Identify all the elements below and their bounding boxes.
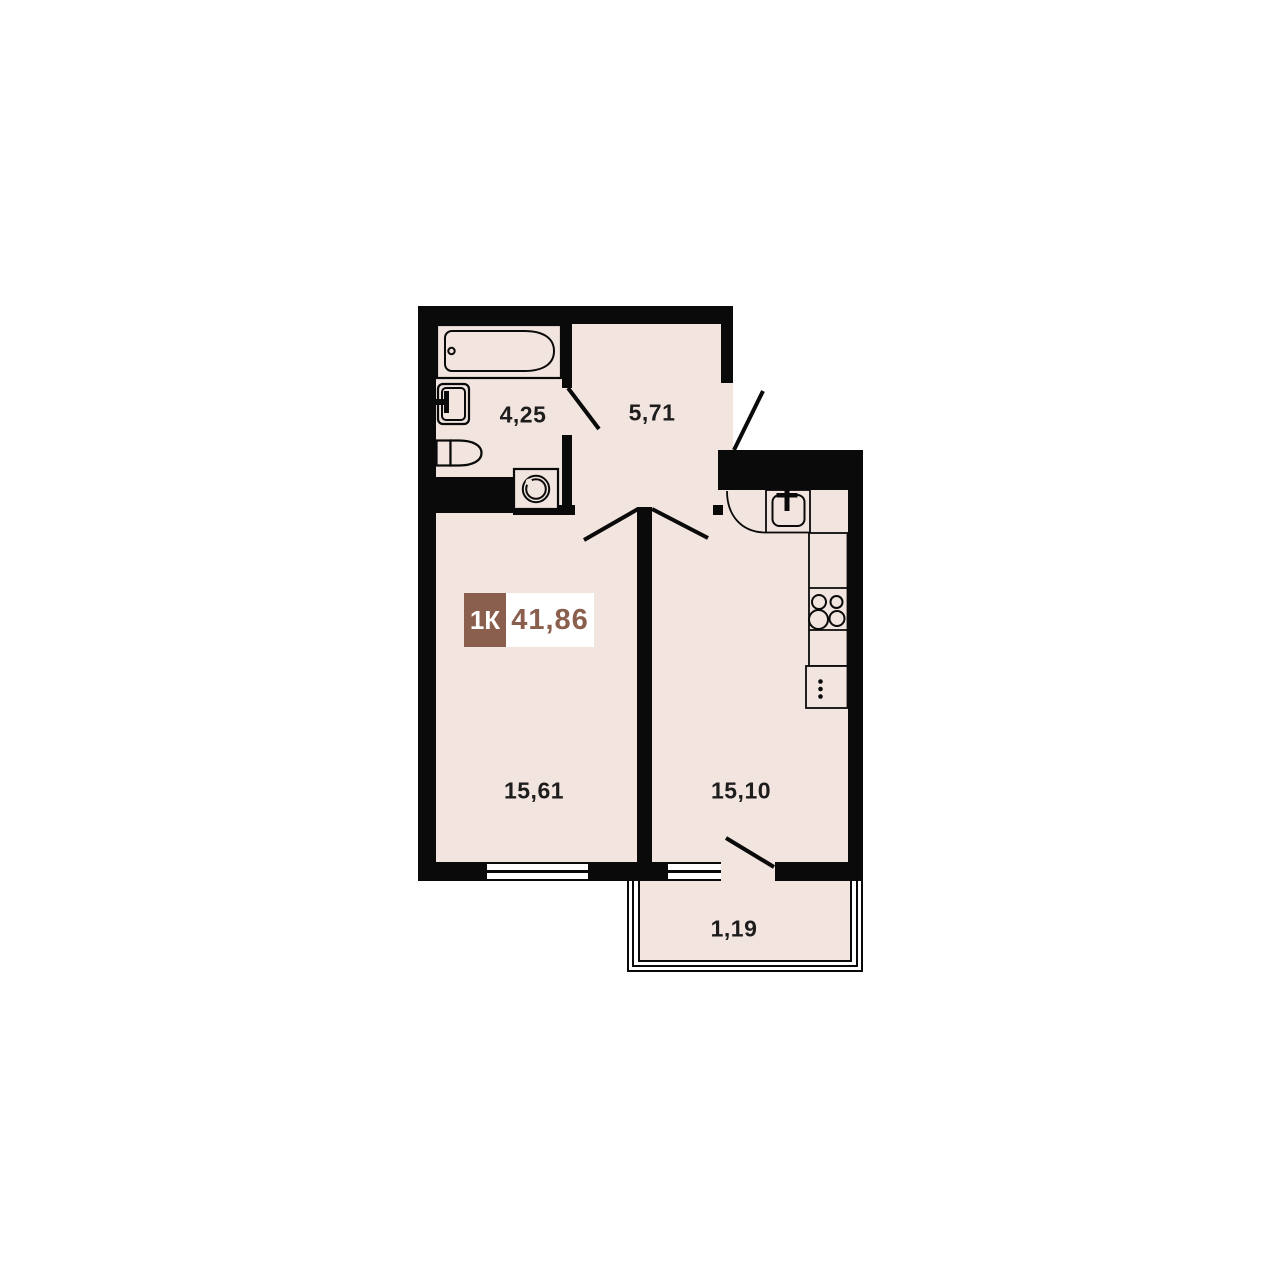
wall-bathroom-right-upper — [562, 324, 572, 388]
room-area-label-bathroom: 4,25 — [500, 402, 547, 429]
wall-under-washer — [513, 505, 575, 515]
window-living-room — [487, 862, 588, 881]
wall-partition-living-kitchen — [637, 507, 652, 881]
apartment-type-label: 1К — [464, 593, 506, 647]
floor-kitchen-wing — [645, 450, 860, 881]
wall-top — [418, 306, 733, 324]
room-area-label-balcony: 1,19 — [711, 916, 758, 943]
floor-plan: 4,25 5,71 15,61 15,10 1,19 1К 41,86 — [0, 0, 1280, 1280]
window-glass-line — [668, 870, 721, 873]
wall-kitchen-entry-stub — [713, 505, 723, 515]
apartment-badge: 1К 41,86 — [464, 593, 594, 647]
wall-left — [418, 306, 436, 881]
room-area-label-living-room: 15,61 — [504, 778, 564, 805]
wall-kitchen-bottom — [775, 862, 863, 881]
wall-bathroom-right-lower — [562, 435, 572, 515]
wall-bathroom-bottom-block — [436, 477, 513, 513]
room-area-label-hallway: 5,71 — [629, 400, 676, 427]
entrance-door-swing — [734, 391, 763, 450]
wall-hall-right — [721, 306, 733, 383]
wall-kitchen-right — [848, 450, 863, 881]
window-kitchen — [668, 862, 721, 881]
window-glass-line — [487, 870, 588, 873]
room-area-label-kitchen: 15,10 — [711, 778, 771, 805]
apartment-total-area: 41,86 — [506, 593, 594, 647]
wall-kitchen-top — [718, 450, 863, 490]
